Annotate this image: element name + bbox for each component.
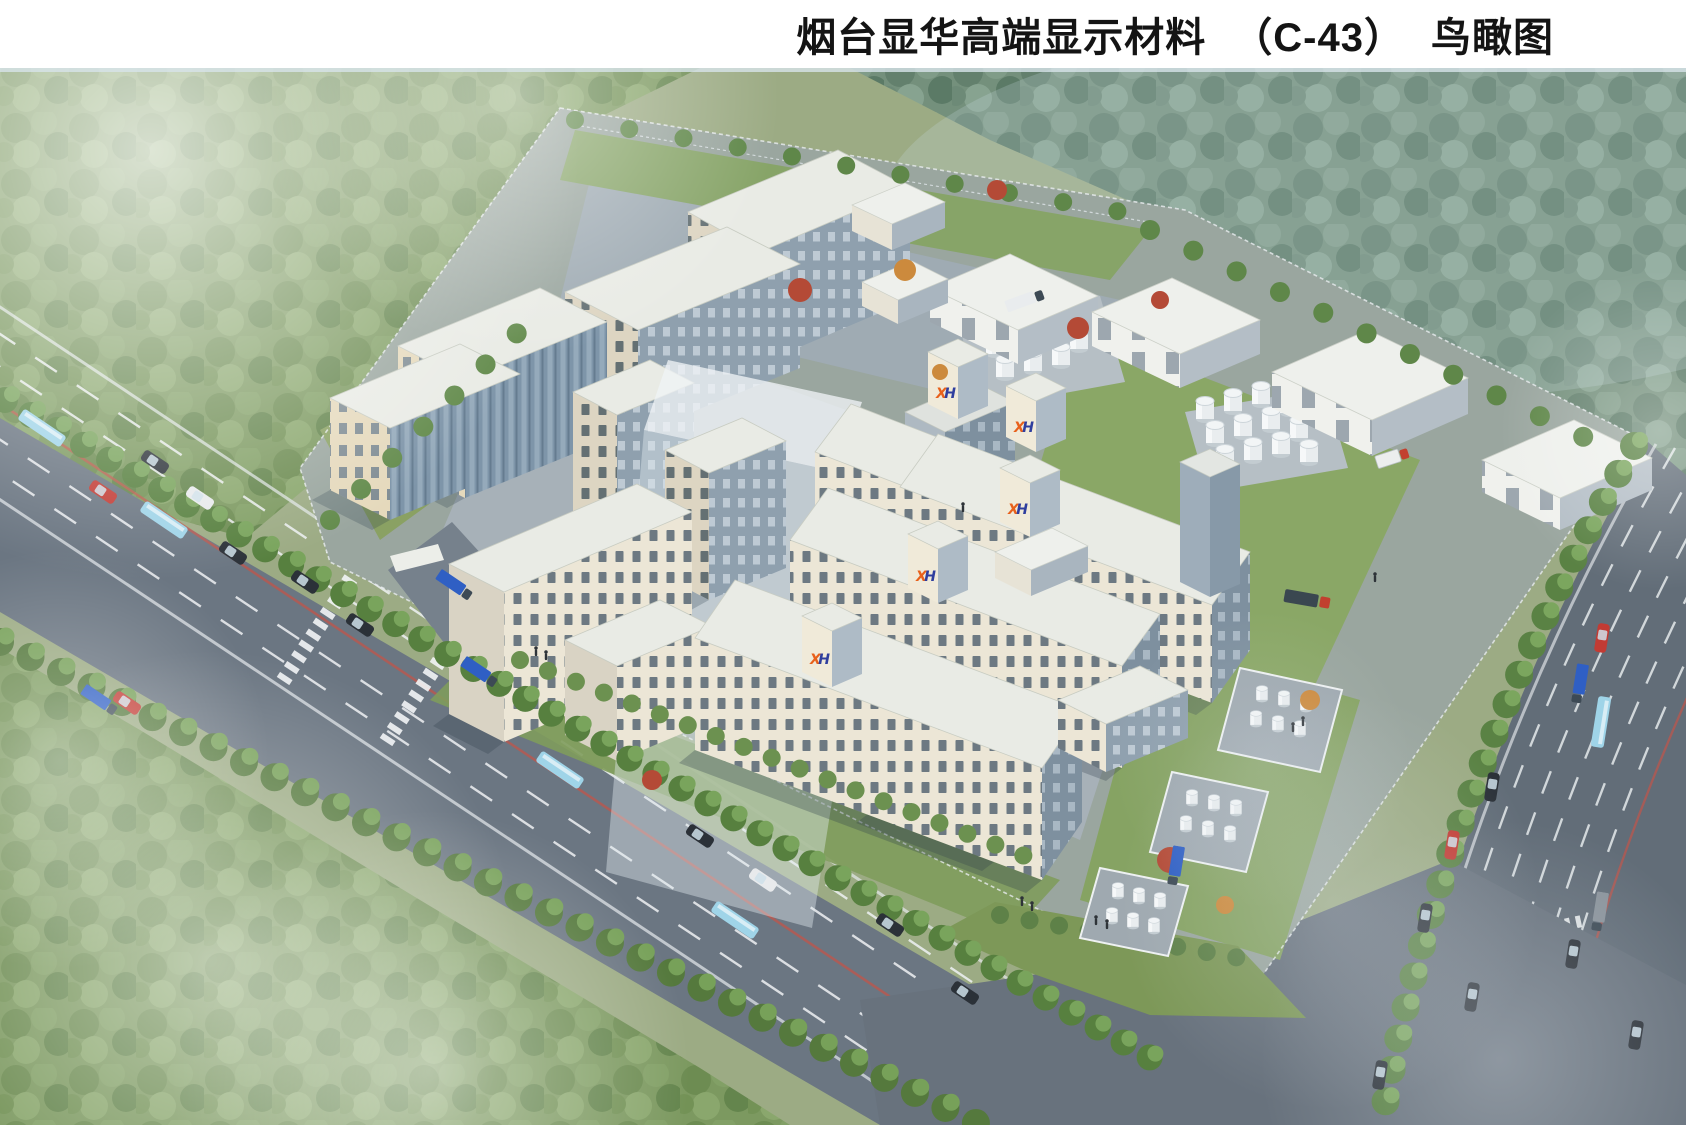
- storage-tank: [1300, 440, 1318, 467]
- storage-tank: [1272, 432, 1290, 459]
- red-tree: [1151, 291, 1169, 309]
- red-tree: [987, 180, 1007, 200]
- red-tree: [1067, 317, 1089, 339]
- red-tree: [642, 770, 662, 790]
- title-plot-code: （C-43）: [1232, 16, 1405, 60]
- red-tree: [788, 278, 812, 302]
- xh-logo: XH: [1007, 502, 1028, 518]
- title-company: 烟台显华高端显示材料: [796, 16, 1206, 60]
- orange-tree: [894, 259, 916, 281]
- page-title: 烟台显华高端显示材料（C-43）鸟瞰图: [796, 5, 1554, 63]
- stair-tower: XH: [802, 603, 862, 687]
- stair-tower: XH: [1000, 455, 1060, 537]
- stair-tower: XH: [1006, 373, 1066, 452]
- xh-logo: XH: [809, 652, 830, 668]
- aerial-rendering: XH XH: [0, 0, 1686, 1125]
- top-edge-line: [0, 68, 1686, 72]
- storage-tank: [1234, 414, 1252, 441]
- title-bar: 烟台显华高端显示材料（C-43）鸟瞰图: [0, 0, 1686, 68]
- storage-tank: [1244, 438, 1262, 465]
- storage-tank: [1252, 382, 1270, 409]
- storage-tank: [1206, 421, 1224, 448]
- storage-tank: [1224, 389, 1242, 416]
- title-view-type: 鸟瞰图: [1431, 16, 1554, 60]
- road-smoke: [1112, 610, 1412, 910]
- stair-tower: XH: [908, 521, 968, 603]
- xh-logo: XH: [935, 386, 956, 402]
- storage-tank: [1196, 397, 1214, 424]
- xh-logo: XH: [1013, 420, 1034, 436]
- page: 烟台显华高端显示材料（C-43）鸟瞰图: [0, 0, 1686, 1125]
- stair-tower-tall: [1180, 449, 1240, 597]
- orange-tree: [932, 364, 948, 380]
- xh-logo: XH: [915, 569, 936, 585]
